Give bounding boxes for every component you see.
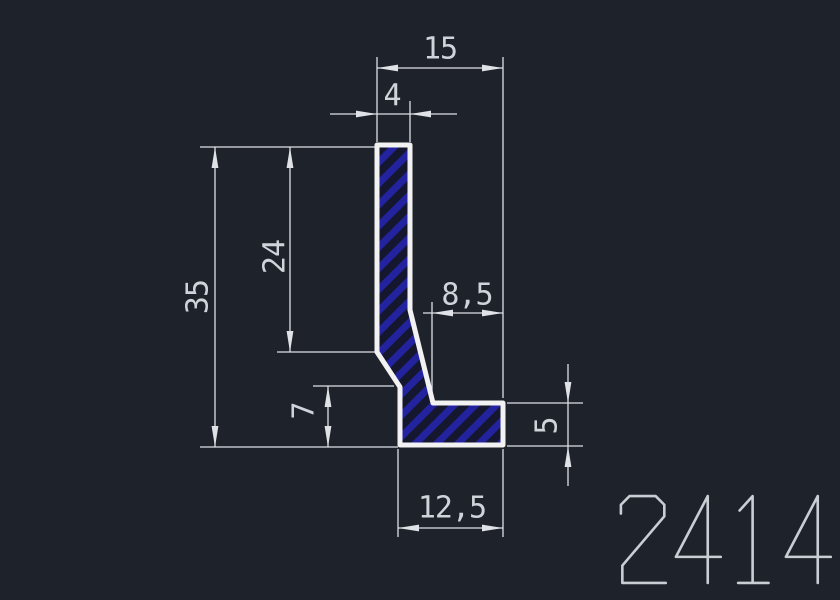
dim-label-5: 5 [530, 417, 565, 434]
dim-label-4: 4 [383, 79, 400, 114]
cad-drawing-canvas: 15 4 35 24 8,5 7 5 12,5 [0, 0, 840, 600]
part-number-digits [618, 492, 838, 587]
dim-label-24: 24 [258, 240, 293, 274]
part-number [618, 492, 838, 587]
dim-label-12-5: 12,5 [418, 491, 486, 526]
part-number-digit [621, 496, 666, 583]
dim-label-35: 35 [181, 280, 216, 314]
dim-label-15: 15 [423, 32, 457, 67]
part-number-digit [786, 496, 831, 583]
dim-label-7: 7 [287, 402, 322, 419]
part-number-digit [738, 496, 768, 583]
part-number-digit [676, 496, 721, 583]
dim-label-8-5: 8,5 [441, 278, 492, 313]
